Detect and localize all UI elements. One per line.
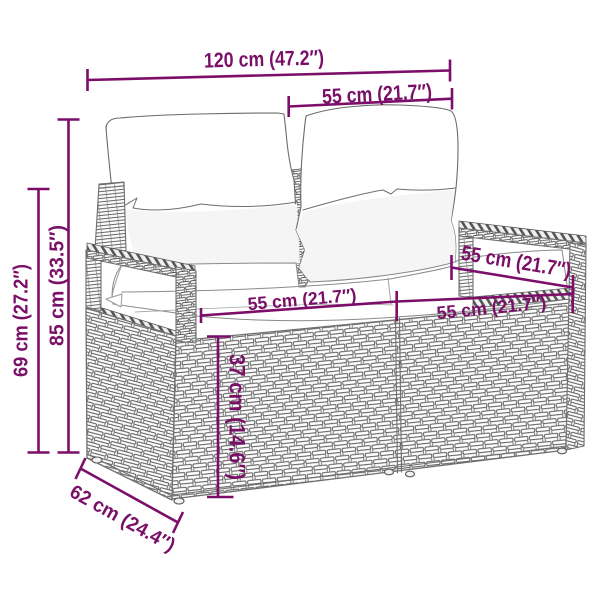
svg-text:69 cm (27.2″): 69 cm (27.2″): [11, 264, 33, 377]
svg-text:37 cm (14.6″): 37 cm (14.6″): [225, 354, 250, 480]
svg-text:85 cm (33.5″): 85 cm (33.5″): [47, 225, 69, 346]
svg-text:120 cm (47.2″): 120 cm (47.2″): [204, 46, 325, 72]
